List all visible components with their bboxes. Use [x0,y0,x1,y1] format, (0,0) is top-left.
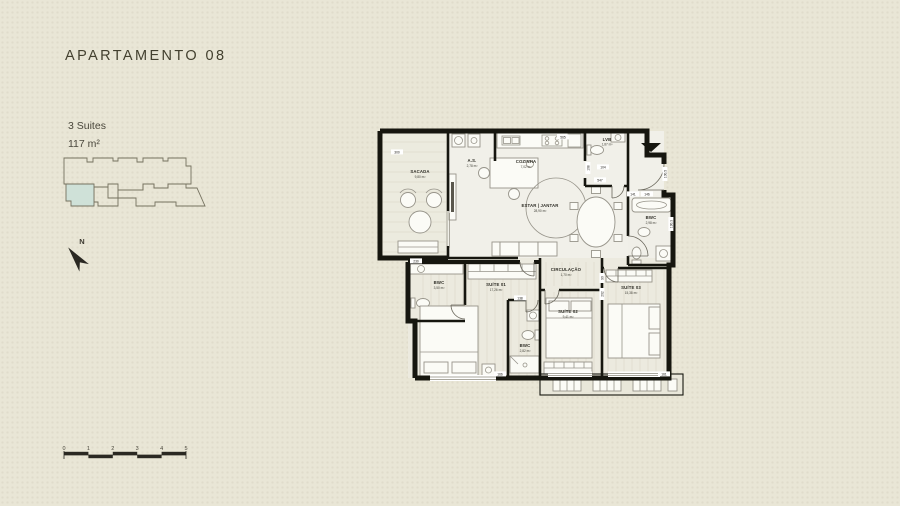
svg-text:SUÍTE 03: SUÍTE 03 [621,285,641,290]
svg-text:300: 300 [394,150,400,154]
svg-text:17,26 m²: 17,26 m² [490,288,503,292]
svg-text:9,80 m²: 9,80 m² [415,175,426,179]
kitchen-counter [497,133,583,148]
spec-suites: 3 Suites [68,117,106,135]
dimension-label: 190.3 [668,217,673,231]
north-label: N [79,237,84,246]
svg-text:2,78 m²: 2,78 m² [467,164,478,168]
scale-tick: 4 [160,446,163,452]
svg-text:SACADA: SACADA [410,169,429,174]
page-title: APARTAMENTO 08 [65,48,226,64]
dimension-label: 230 [410,258,422,263]
spec-area: 117 m² [68,135,106,153]
scale-bar: 0 1 2 3 4 5 [58,443,198,467]
dimension-label: 166 [494,371,506,376]
svg-text:100.5: 100.5 [663,170,667,178]
svg-text:BWC: BWC [646,215,657,220]
dimension-label: 161 [658,371,670,376]
svg-text:202: 202 [600,291,604,297]
svg-text:547: 547 [597,178,603,182]
svg-text:15,38 m²: 15,38 m² [625,291,638,295]
dimension-label: 141 [627,191,639,196]
bed-suite-02 [546,298,592,358]
svg-text:CIRCULAÇÃO: CIRCULAÇÃO [551,267,582,272]
dimension-label: 108 [585,162,590,174]
svg-text:9,41 m²: 9,41 m² [563,315,574,319]
svg-text:2,98 m²: 2,98 m² [646,221,657,225]
svg-text:104: 104 [600,165,606,169]
apartment-floor-plan: SACADA 9,80 m² A.S. 2,78 m² COZINHA 7,02… [368,116,704,402]
dimension-label: 202 [599,288,604,300]
scale-bar-segments [64,451,186,459]
floor-plan-page: APARTAMENTO 08 3 Suites 117 m² N 0 1 2 3… [0,0,900,506]
svg-text:SUÍTE 02: SUÍTE 02 [558,309,578,314]
north-arrow-icon [63,244,88,272]
svg-text:LVB: LVB [603,137,612,142]
dimension-label: 547 [594,177,606,182]
balcony-table [409,211,431,233]
svg-text:BWC: BWC [520,343,531,348]
washer-icon [452,134,465,147]
room-label-lvb: LVB 1,87 m² [602,137,613,147]
svg-text:1,70 m²: 1,70 m² [561,273,572,277]
dimension-label: 100.5 [662,167,667,181]
closet-suite-01 [468,264,536,279]
scale-tick: 3 [136,446,139,452]
bed-suite-03 [608,304,660,358]
scale-tick: 1 [87,446,90,452]
svg-text:SUÍTE 01: SUÍTE 01 [486,282,506,287]
svg-text:161: 161 [661,372,667,376]
svg-text:28,90 m²: 28,90 m² [534,209,547,213]
svg-text:2,82 m²: 2,82 m² [520,349,531,353]
dimension-label: 138 [514,295,526,300]
laundry-tank-icon [468,134,480,147]
svg-text:230: 230 [413,259,419,263]
dimension-label: 146 [641,191,653,196]
dimension-label: 565 [557,134,569,139]
sofa [492,242,557,256]
svg-text:7,02 m²: 7,02 m² [521,165,532,169]
closet-suite-03 [606,270,652,282]
ac-condensers [553,379,677,391]
scale-tick: 2 [111,446,114,452]
north-indicator: N [60,234,100,276]
bathtub-icon [632,198,671,212]
dimension-label: 104 [597,164,609,169]
svg-text:565: 565 [560,135,566,139]
svg-text:ESTAR | JANTAR: ESTAR | JANTAR [521,203,559,208]
svg-text:141: 141 [630,192,636,196]
key-plan-highlight-unit [66,184,94,206]
svg-text:138: 138 [517,296,523,300]
svg-text:COZINHA: COZINHA [516,159,537,164]
svg-text:166: 166 [497,372,503,376]
svg-text:3,50 m²: 3,50 m² [434,286,445,290]
svg-text:90: 90 [600,276,604,280]
dimension-label: 300 [391,149,403,154]
svg-text:1,87 m²: 1,87 m² [602,143,613,147]
svg-text:A.S.: A.S. [468,158,477,163]
unit-specs: 3 Suites 117 m² [68,117,106,154]
balcony-bench [398,241,438,253]
svg-text:146: 146 [644,192,650,196]
svg-text:190.3: 190.3 [669,220,673,228]
svg-text:108: 108 [586,165,590,171]
tv-cabinet [449,174,456,220]
svg-text:BWC: BWC [434,280,445,285]
building-key-plan [58,154,214,218]
dimension-label: 90 [599,273,604,283]
